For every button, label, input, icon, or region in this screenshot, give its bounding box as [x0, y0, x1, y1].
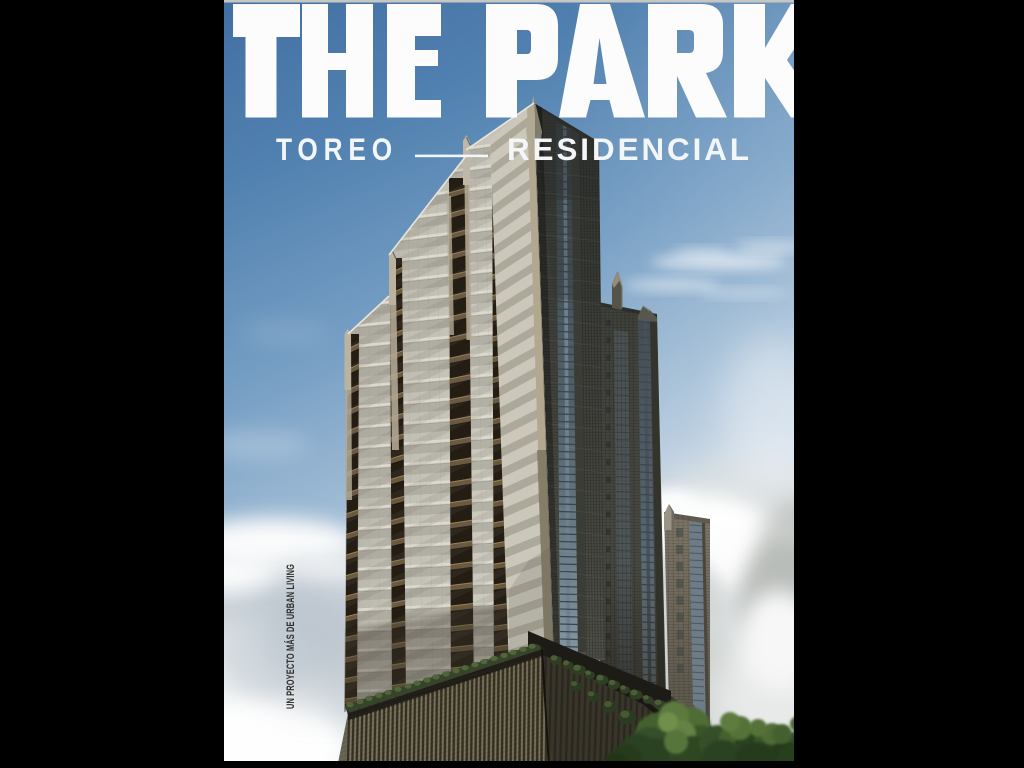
svg-text:TOREO: TOREO — [276, 131, 398, 167]
svg-text:UN PROYECTO MÁS DE URBAN LIVIN: UN PROYECTO MÁS DE URBAN LIVING — [284, 564, 297, 709]
svg-text:RESIDENCIAL: RESIDENCIAL — [507, 131, 752, 167]
